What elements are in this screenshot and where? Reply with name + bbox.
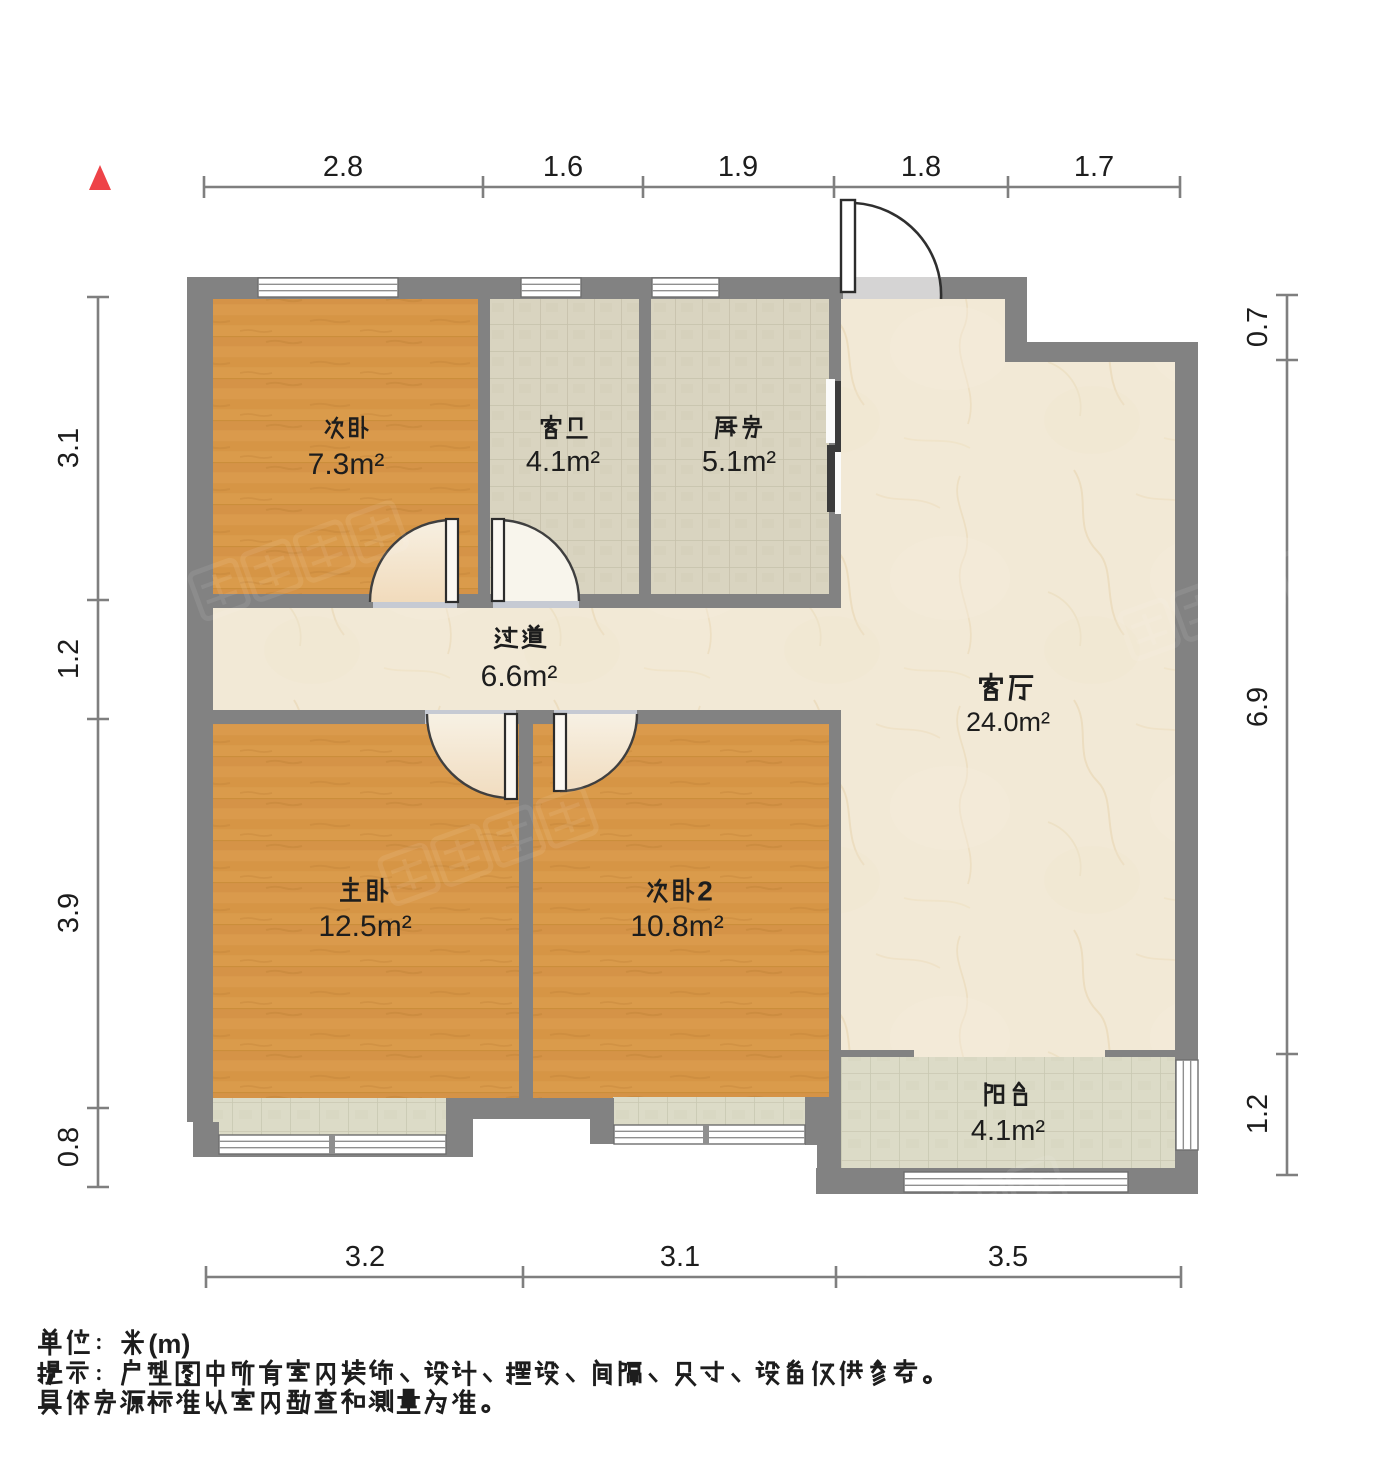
svg-text:7.3m²: 7.3m²	[308, 448, 385, 481]
svg-text:3.5: 3.5	[988, 1241, 1028, 1273]
svg-text:0.7: 0.7	[1242, 307, 1274, 347]
svg-text:1.2: 1.2	[1242, 1094, 1274, 1134]
svg-text:24.0m²: 24.0m²	[966, 707, 1050, 737]
svg-text:5.1m²: 5.1m²	[702, 446, 776, 478]
svg-text:3.1: 3.1	[53, 428, 85, 468]
svg-text:(m): (m)	[148, 1329, 190, 1359]
svg-text:1.8: 1.8	[901, 151, 941, 183]
svg-text:3.2: 3.2	[345, 1241, 385, 1273]
svg-text:1.2: 1.2	[53, 639, 85, 679]
svg-text:12.5m²: 12.5m²	[318, 910, 411, 943]
svg-text:0.8: 0.8	[53, 1127, 85, 1167]
svg-text:4.1m²: 4.1m²	[526, 446, 600, 478]
svg-text:2.8: 2.8	[323, 151, 363, 183]
svg-text:1.7: 1.7	[1074, 151, 1114, 183]
svg-text:1.9: 1.9	[718, 151, 758, 183]
svg-text:6.9: 6.9	[1242, 687, 1274, 727]
svg-text:10.8m²: 10.8m²	[630, 910, 723, 943]
svg-text:3.1: 3.1	[660, 1241, 700, 1273]
svg-text:3.9: 3.9	[53, 893, 85, 933]
svg-text:6.6m²: 6.6m²	[481, 660, 558, 693]
svg-text:1.6: 1.6	[543, 151, 583, 183]
svg-text:2: 2	[697, 876, 713, 907]
svg-text:4.1m²: 4.1m²	[971, 1115, 1045, 1147]
